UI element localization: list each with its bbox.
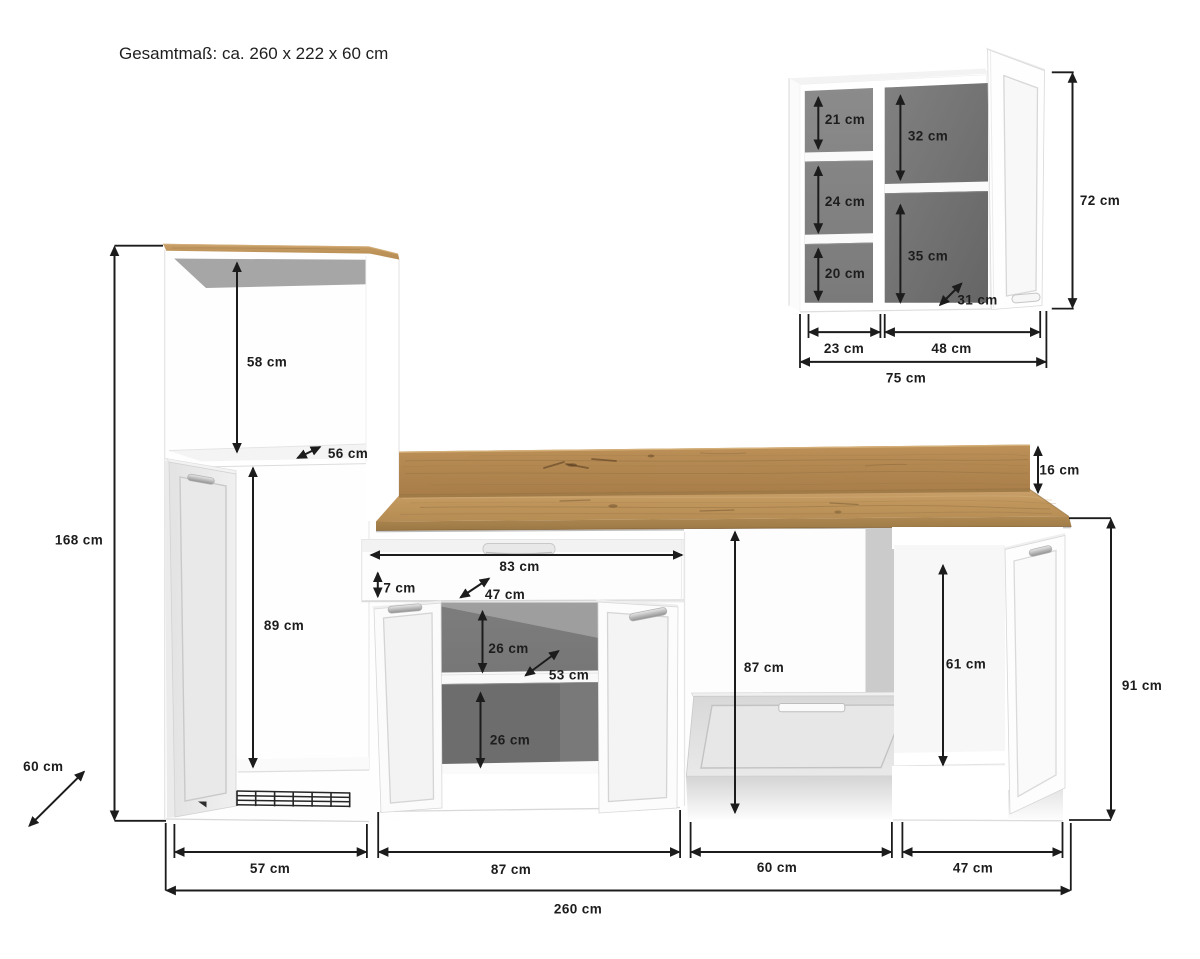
svg-text:91 cm: 91 cm <box>1122 678 1162 693</box>
svg-text:53 cm: 53 cm <box>549 668 589 683</box>
svg-text:32 cm: 32 cm <box>908 129 948 144</box>
svg-text:47 cm: 47 cm <box>953 861 993 876</box>
svg-text:26 cm: 26 cm <box>488 641 528 656</box>
svg-text:21 cm: 21 cm <box>825 112 865 127</box>
svg-text:60 cm: 60 cm <box>757 860 797 875</box>
svg-text:58 cm: 58 cm <box>247 355 287 370</box>
svg-text:60 cm: 60 cm <box>23 759 63 774</box>
svg-text:260 cm: 260 cm <box>554 902 602 917</box>
svg-text:48 cm: 48 cm <box>931 341 971 356</box>
svg-text:168 cm: 168 cm <box>55 533 103 548</box>
svg-text:47 cm: 47 cm <box>485 587 525 602</box>
svg-text:Gesamtmaß: ca. 260 x 222 x 60: Gesamtmaß: ca. 260 x 222 x 60 cm <box>119 44 388 63</box>
svg-text:16 cm: 16 cm <box>1039 463 1079 478</box>
svg-text:56 cm: 56 cm <box>328 446 368 461</box>
svg-text:61 cm: 61 cm <box>946 657 986 672</box>
svg-text:35 cm: 35 cm <box>908 249 948 264</box>
svg-text:7 cm: 7 cm <box>383 581 415 596</box>
svg-text:83 cm: 83 cm <box>499 559 539 574</box>
svg-text:26 cm: 26 cm <box>490 733 530 748</box>
svg-text:87 cm: 87 cm <box>744 660 784 675</box>
svg-text:57 cm: 57 cm <box>250 861 290 876</box>
svg-text:75 cm: 75 cm <box>886 371 926 386</box>
svg-text:89 cm: 89 cm <box>264 618 304 633</box>
svg-text:23 cm: 23 cm <box>824 341 864 356</box>
svg-text:87 cm: 87 cm <box>491 862 531 877</box>
svg-text:20 cm: 20 cm <box>825 266 865 281</box>
svg-text:72 cm: 72 cm <box>1080 193 1120 208</box>
svg-text:24 cm: 24 cm <box>825 194 865 209</box>
svg-text:31 cm: 31 cm <box>957 293 997 308</box>
